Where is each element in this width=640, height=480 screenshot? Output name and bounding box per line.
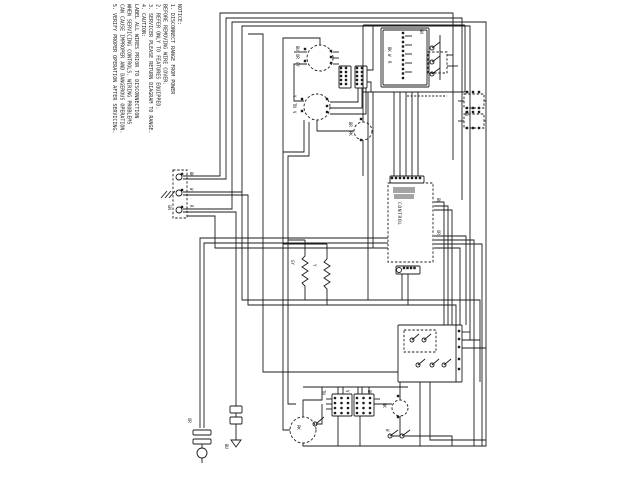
connector-pin [478, 111, 480, 113]
wire-color-label: PK [348, 131, 353, 136]
connector-pin [181, 189, 183, 191]
connector-pin [326, 105, 328, 107]
wire [432, 56, 440, 62]
wire [412, 334, 419, 340]
ground-connector-2 [230, 417, 242, 424]
connector-pin [402, 32, 404, 34]
connector-pin [402, 41, 404, 43]
wire-color-label: GN [419, 29, 424, 34]
relay-box-lower [464, 114, 484, 128]
connector-pin [415, 177, 417, 179]
wire [434, 236, 466, 325]
wire-color-label: BU [436, 198, 441, 203]
connector-pin [458, 338, 460, 340]
wire-color-label: R [189, 205, 194, 208]
connector-pin [301, 98, 303, 100]
plug-bar-2 [193, 439, 211, 444]
wire [283, 120, 304, 152]
wire [432, 359, 439, 365]
wire-color-label: BU [224, 444, 229, 449]
connector-pin [478, 127, 480, 129]
clock-control-board [381, 28, 429, 87]
connector-pin [466, 107, 468, 109]
wire-color-label: Y [312, 264, 317, 267]
wire [418, 359, 425, 365]
connector-pin [345, 67, 347, 69]
connector-pin [402, 63, 404, 65]
connector-pin [402, 59, 404, 61]
circle-symbol-layer [176, 45, 446, 458]
wire-color-label: BK [189, 172, 194, 177]
connector-pin [356, 71, 358, 73]
connector-pin [478, 91, 480, 93]
surface-switch-top-symbol [307, 45, 333, 71]
wire [330, 88, 358, 102]
wire-color-label: Y [292, 95, 297, 98]
wire-color-label: V [345, 390, 350, 393]
wire [430, 382, 486, 440]
notice-line: 3. SERVICER PLEASE RETURN DIAGRAM TO RAN… [147, 4, 153, 133]
plug-bar-1 [193, 430, 211, 435]
wire [367, 82, 371, 92]
terminal-dot [334, 412, 337, 415]
connector-pin [345, 83, 347, 85]
clock-board-outer-loop [363, 25, 465, 92]
connector-pin [406, 267, 408, 269]
wire [373, 92, 388, 248]
connector-pin [361, 79, 363, 81]
connector-pin [304, 60, 306, 62]
wiring-diagram: NOTICE:1. DISCONNECT RANGE FROM POWER BE… [0, 0, 640, 480]
connector-pin [395, 177, 397, 179]
terminal-dot [362, 402, 365, 405]
wire [317, 417, 324, 423]
wire [302, 240, 308, 300]
power-plug-circle [197, 448, 207, 458]
component-outline-layer [193, 25, 465, 444]
connector-pin [356, 75, 358, 77]
terminal-dot [369, 407, 372, 410]
notice-line: 5. VERIFY PROPER OPERATION AFTER SERVICI… [111, 4, 117, 133]
wire-layer [161, 13, 486, 463]
connector-pin [326, 98, 328, 100]
connector-pin [466, 127, 468, 129]
wire [330, 88, 366, 114]
connector-pin [301, 110, 303, 112]
terminal-dot [340, 402, 343, 405]
terminal-dot [334, 397, 337, 400]
oven-control-vertical-label: CONTROL [396, 202, 402, 226]
connector-pin [411, 177, 413, 179]
connector-pin [399, 177, 401, 179]
wire [183, 13, 453, 176]
lower-relay-inner-box [404, 330, 436, 352]
wire-color-label: OR [187, 418, 192, 423]
connector-pin [181, 206, 183, 208]
wire-color-label: W [385, 429, 390, 432]
wire [390, 430, 398, 436]
terminal-dot [347, 407, 350, 410]
connector-pin [356, 67, 358, 69]
wire [283, 38, 320, 430]
wire [444, 359, 451, 365]
wire [434, 210, 452, 325]
connector-pin [340, 71, 342, 73]
wire [402, 430, 410, 436]
notice-line: 4. CAUTION: [140, 4, 146, 37]
terminal-dot [369, 402, 372, 405]
wire-color-label: BK [387, 47, 392, 52]
notice-line: CAN CAUSE IMPROPER AND DANGEROUS OPERATI… [118, 4, 124, 133]
connector-pin [345, 75, 347, 77]
wire-color-label: OR [295, 54, 300, 59]
oven-lamp-symbol [354, 122, 372, 140]
terminal-dot [356, 412, 359, 415]
connector-pin [391, 177, 393, 179]
wire [303, 443, 338, 446]
connector-pin [458, 330, 460, 332]
connector-pin [472, 91, 474, 93]
connector-pin [403, 177, 405, 179]
wire-color-label: BR [348, 122, 353, 127]
connector-pin [478, 107, 480, 109]
wire [367, 25, 373, 70]
terminal-dot [356, 402, 359, 405]
wire-color-label: GN [464, 111, 469, 116]
connector-pin [326, 111, 328, 113]
connector-pin [340, 75, 342, 77]
notice-line: WHEN SERVICING CONTROLS. WIRING PROBLEMS [126, 4, 132, 124]
notice-line: BEFORE REMOVING WIRE COVER. [162, 4, 168, 85]
wire-color-label: BU [295, 46, 300, 51]
terminal-dot [362, 397, 365, 400]
connector-pin [330, 62, 332, 64]
wire-color-label: OR [436, 230, 441, 235]
connector-pin [402, 54, 404, 56]
notice-text-block: NOTICE:1. DISCONNECT RANGE FROM POWER BE… [111, 4, 182, 133]
terminal-dot [362, 412, 365, 415]
connector-pin [397, 416, 399, 418]
wire [434, 202, 444, 325]
notice-line: NOTICE: [176, 4, 182, 25]
wire [434, 206, 448, 325]
connector-pin [419, 177, 421, 179]
terminal-dot [334, 407, 337, 410]
terminal-dot-grid-layer [334, 397, 372, 415]
wire [432, 42, 440, 48]
terminal-dot [340, 397, 343, 400]
connector-pin [402, 68, 404, 70]
connector-pin [402, 50, 404, 52]
connector-pin [402, 72, 404, 74]
connector-pin [458, 368, 460, 370]
connector-eyelet-circle [397, 268, 402, 273]
connector-pin [340, 67, 342, 69]
wire-color-label: PK [296, 425, 301, 430]
connector-pin [304, 48, 306, 50]
notice-line: 2. REFER ONLY TO FEATURES EQUIPPED. [154, 4, 160, 109]
notice-line: 1. DISCONNECT RANGE FROM POWER [169, 4, 175, 95]
terminal-dot [347, 412, 350, 415]
wire [183, 18, 462, 200]
wire [248, 34, 398, 372]
connector-pin [360, 118, 362, 120]
wire [204, 243, 388, 428]
connector-pin [402, 45, 404, 47]
terminal-dot [347, 397, 350, 400]
convection-motor-symbol [290, 417, 316, 443]
connector-pin [472, 127, 474, 129]
connector-pin [360, 139, 362, 141]
connector-pin [345, 79, 347, 81]
connector-pin [181, 173, 183, 175]
wire-color-label: GN [167, 205, 172, 210]
wire-color-label: R [387, 61, 392, 64]
scanned-wiring-diagram-page: NOTICE:1. DISCONNECT RANGE FROM POWER BE… [0, 0, 640, 480]
wire [434, 240, 474, 446]
connector-pin [407, 177, 409, 179]
connector-pin [340, 79, 342, 81]
wire-color-label: GY [295, 62, 300, 67]
connector-pin [472, 107, 474, 109]
connector-pin [397, 395, 399, 397]
wire [324, 244, 330, 305]
connector-pin [361, 75, 363, 77]
notice-line: LABEL ALL WIRES PRIOR TO DISCONNECTION [133, 4, 139, 118]
wire [434, 244, 482, 446]
oven-motor-symbol [392, 400, 408, 416]
terminal-dot [334, 402, 337, 405]
terminal-dot [340, 407, 343, 410]
connector-pin [458, 358, 460, 360]
wire [183, 195, 456, 382]
connector-pin [403, 267, 405, 269]
connector-pin [361, 71, 363, 73]
connector-pin [410, 267, 412, 269]
wire-color-label: BR [367, 390, 372, 395]
connector-pin [472, 111, 474, 113]
connector-hatch-layer [394, 187, 414, 199]
ground-connector-1 [230, 406, 242, 413]
lower-relay-board [398, 325, 462, 382]
terminal-dot [356, 397, 359, 400]
terminal-dot [362, 407, 365, 410]
connector-pin [356, 79, 358, 81]
wire-color-label: GY [290, 260, 295, 265]
wire [200, 238, 388, 428]
terminal-dot [347, 402, 350, 405]
wire [183, 212, 236, 406]
terminal-dot [369, 397, 372, 400]
terminal-dot [340, 412, 343, 415]
wire [330, 88, 362, 108]
wire-color-label: BK [382, 403, 387, 408]
connector-pin [361, 83, 363, 85]
connector-pin [330, 56, 332, 58]
connector-pin [340, 83, 342, 85]
wire-color-label: W [387, 54, 392, 57]
wire [392, 416, 400, 436]
connector-pin [361, 67, 363, 69]
wire [303, 387, 322, 417]
connector-pin [330, 50, 332, 52]
wire-color-label: W [189, 188, 194, 191]
connector-pin [402, 77, 404, 79]
terminal-dot [356, 407, 359, 410]
wire [404, 436, 452, 446]
relay-box-upper [464, 94, 484, 108]
wire-color-label: TN [321, 390, 326, 395]
wire-color-label: V [292, 111, 297, 114]
connector-pin [356, 83, 358, 85]
power-terminal-block [173, 170, 187, 218]
wire [231, 440, 241, 447]
clock-control-board-inner [383, 30, 427, 85]
terminal-dot [369, 412, 372, 415]
connector-pin [458, 346, 460, 348]
wire-color-label: TN [292, 103, 297, 108]
connector-pin [413, 267, 415, 269]
wire [424, 334, 431, 340]
connector-pin [402, 36, 404, 38]
connector-pin [345, 71, 347, 73]
